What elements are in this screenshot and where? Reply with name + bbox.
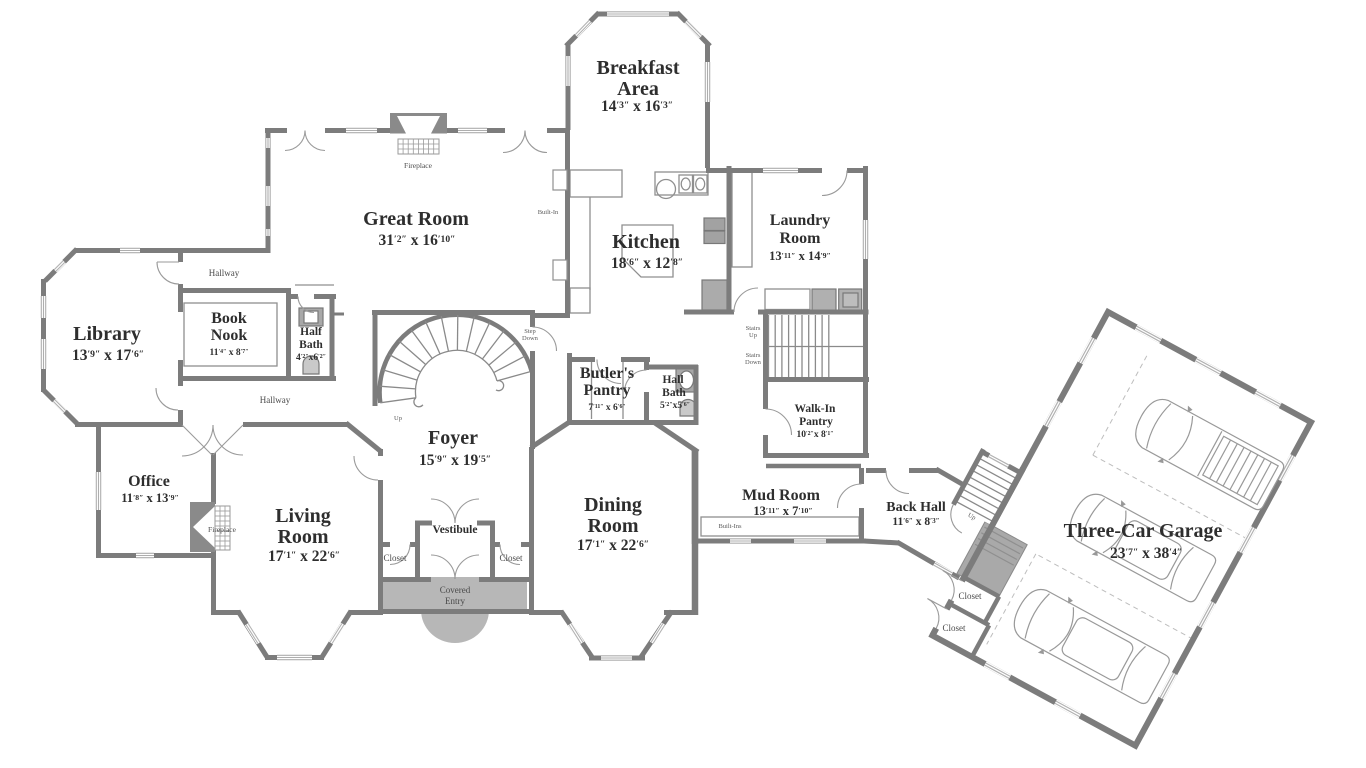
svg-text:Room: Room [587, 515, 638, 537]
svg-text:Mud Room: Mud Room [742, 487, 820, 504]
svg-text:Closet: Closet [499, 553, 523, 563]
svg-text:Up: Up [394, 415, 402, 422]
svg-text:Laundry: Laundry [770, 212, 830, 229]
svg-text:Nook: Nook [211, 327, 248, 344]
svg-text:Closet: Closet [958, 591, 982, 601]
svg-text:Dining: Dining [584, 494, 642, 516]
svg-text:Fireplace: Fireplace [404, 161, 433, 170]
svg-text:Butler's: Butler's [580, 365, 634, 382]
svg-text:Pantry: Pantry [583, 382, 630, 399]
svg-text:Bath: Bath [662, 387, 686, 399]
svg-text:Walk-In: Walk-In [795, 403, 837, 415]
svg-text:Covered: Covered [440, 585, 471, 595]
svg-text:Down: Down [522, 335, 539, 342]
svg-text:Down: Down [745, 359, 762, 366]
svg-text:Step: Step [524, 328, 536, 335]
svg-text:Pantry: Pantry [799, 416, 833, 428]
svg-text:Built-In: Built-In [538, 209, 559, 216]
svg-text:Office: Office [128, 473, 170, 490]
svg-text:Hallway: Hallway [209, 268, 240, 278]
svg-text:Closet: Closet [383, 553, 407, 563]
svg-text:Hallway: Hallway [260, 395, 291, 405]
svg-text:Fireplace: Fireplace [208, 525, 237, 534]
svg-text:Stairs: Stairs [746, 352, 761, 359]
svg-text:Kitchen: Kitchen [612, 231, 680, 253]
svg-text:Area: Area [617, 78, 659, 100]
svg-text:Living: Living [275, 505, 331, 527]
svg-text:Great Room: Great Room [363, 208, 469, 230]
svg-text:Foyer: Foyer [428, 427, 478, 449]
svg-text:Hall: Hall [662, 374, 683, 386]
svg-text:Book: Book [211, 310, 247, 327]
svg-text:Back Hall: Back Hall [886, 500, 946, 515]
svg-text:Up: Up [749, 332, 757, 339]
svg-text:Breakfast: Breakfast [597, 57, 680, 79]
svg-text:Room: Room [277, 526, 328, 548]
svg-text:Bath: Bath [299, 339, 323, 351]
svg-text:Built-Ins: Built-Ins [718, 523, 742, 530]
svg-text:Half: Half [300, 326, 322, 338]
svg-text:Closet: Closet [942, 623, 966, 633]
svg-text:Room: Room [780, 230, 822, 247]
svg-text:Stairs: Stairs [746, 325, 761, 332]
svg-text:Vestibule: Vestibule [433, 524, 478, 536]
svg-text:Library: Library [73, 323, 141, 345]
svg-text:Three-Car Garage: Three-Car Garage [1064, 520, 1223, 542]
svg-text:Entry: Entry [445, 596, 465, 606]
